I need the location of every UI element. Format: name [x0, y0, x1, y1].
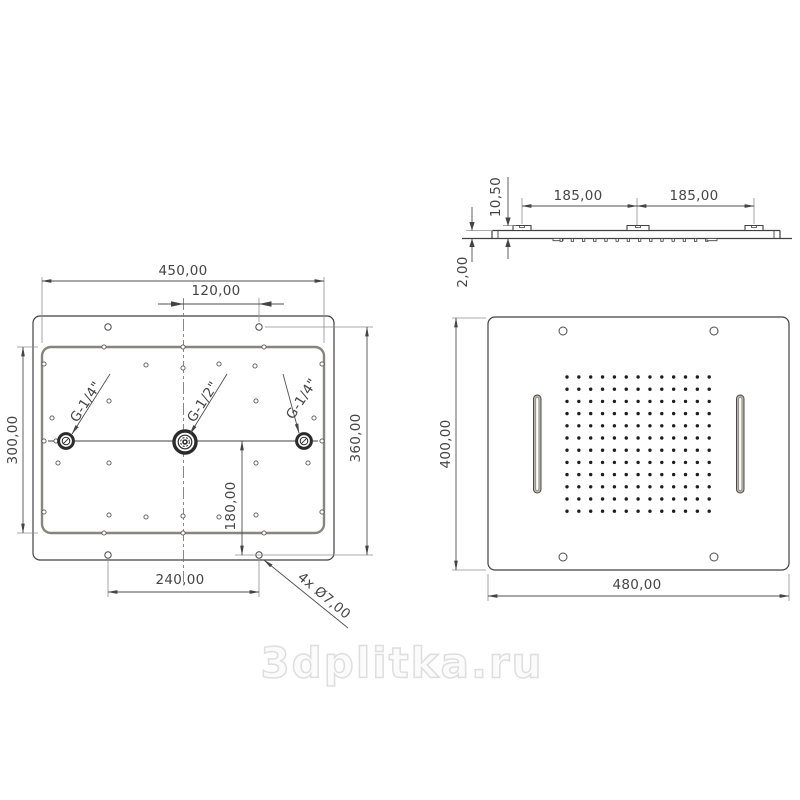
nozzle-dot	[696, 485, 699, 488]
dim-label-plate-width: 450,00	[158, 263, 207, 279]
side-view	[462, 177, 792, 262]
nozzle-dot	[660, 375, 663, 378]
nozzle-dot	[601, 510, 604, 513]
spray-hole	[254, 461, 258, 465]
spray-hole	[107, 461, 111, 465]
fitting-ring	[174, 431, 196, 453]
watermark: 3dplitka.ru	[260, 639, 543, 688]
spray-hole	[262, 531, 266, 535]
nozzle-dot	[613, 412, 616, 415]
nozzle-tick	[616, 239, 618, 242]
nozzle-dot	[684, 436, 687, 439]
spray-hole	[181, 366, 185, 370]
nozzle-dot	[648, 461, 651, 464]
nozzle-dot	[565, 485, 568, 488]
nozzle-dot	[589, 449, 592, 452]
nozzle-dot	[601, 388, 604, 391]
mount-hole	[105, 324, 111, 330]
nozzle-dot	[577, 449, 580, 452]
dim-120-arrow	[259, 301, 272, 306]
nozzle-dot	[660, 497, 663, 500]
nozzle-dot	[672, 485, 675, 488]
mount-hole	[710, 327, 718, 335]
spray-hole	[107, 513, 111, 517]
nozzle-dot-grid	[565, 375, 711, 513]
spray-hole	[320, 510, 324, 514]
nozzle-dot	[684, 412, 687, 415]
nozzle-tick	[638, 239, 640, 242]
nozzle-dot	[660, 388, 663, 391]
nozzle-dot	[708, 424, 711, 427]
nozzle-dot	[625, 400, 628, 403]
spray-hole	[217, 362, 221, 366]
nozzle-dot	[696, 449, 699, 452]
dim-label-front-height: 400,00	[438, 419, 454, 468]
nozzle-dot	[625, 424, 628, 427]
nozzle-tick	[627, 239, 629, 242]
spray-hole	[181, 345, 185, 349]
dim-1050-arrow	[505, 218, 510, 227]
nozzle-dot	[577, 473, 580, 476]
nozzle-dot	[589, 461, 592, 464]
spray-hole	[306, 461, 310, 465]
nozzle-dot	[613, 424, 616, 427]
nozzle-dot	[601, 449, 604, 452]
nozzle-dot	[577, 510, 580, 513]
nozzle-dot	[613, 473, 616, 476]
nozzle-dot	[636, 412, 639, 415]
nozzle-tick	[605, 239, 607, 242]
dim-label-plate-height: 300,00	[5, 415, 21, 464]
nozzle-tick	[560, 239, 562, 242]
nozzle-tick	[683, 239, 685, 242]
nozzle-dot	[648, 412, 651, 415]
nozzle-dot	[696, 424, 699, 427]
mount-hole	[710, 553, 718, 561]
nozzle-dot	[589, 497, 592, 500]
nozzle-dot	[577, 388, 580, 391]
nozzle-dot	[708, 497, 711, 500]
spray-hole	[320, 439, 324, 443]
nozzle-dot	[589, 412, 592, 415]
nozzle-dot	[648, 449, 651, 452]
nozzle-dot	[672, 424, 675, 427]
nozzle-dot	[565, 412, 568, 415]
nozzle-dot	[601, 497, 604, 500]
nozzle-dot	[613, 497, 616, 500]
nozzle-dot	[577, 485, 580, 488]
nozzle-dot	[565, 461, 568, 464]
nozzle-dot	[684, 424, 687, 427]
dim-label-hole-span-h: 240,00	[155, 572, 204, 588]
slot-inner	[739, 398, 742, 491]
nozzle-dot	[708, 485, 711, 488]
nozzle-dot	[684, 461, 687, 464]
nozzle-dot	[589, 424, 592, 427]
dim-1050-arrow	[505, 239, 510, 248]
dim-label-connector-height: 10,50	[488, 177, 504, 217]
nozzle-dot	[684, 449, 687, 452]
nozzle-tick	[661, 239, 663, 242]
nozzle-dot	[708, 412, 711, 415]
nozzle-tick	[571, 239, 573, 242]
nozzle-dot	[601, 485, 604, 488]
nozzle-dot	[589, 485, 592, 488]
nozzle-end-tab	[707, 239, 717, 241]
nozzle-dot	[708, 388, 711, 391]
nozzle-dot	[696, 461, 699, 464]
inlet-connector	[513, 226, 531, 231]
nozzle-dot	[696, 400, 699, 403]
nozzle-dot	[696, 375, 699, 378]
dim-200-arrow	[469, 239, 474, 248]
nozzle-dot	[625, 449, 628, 452]
nozzle-dot	[660, 510, 663, 513]
nozzle-dot	[672, 461, 675, 464]
nozzle-dot	[577, 461, 580, 464]
nozzle-dot	[684, 388, 687, 391]
spray-hole	[254, 399, 258, 403]
nozzle-tick	[694, 239, 696, 242]
nozzle-dot	[684, 510, 687, 513]
nozzle-dot	[648, 510, 651, 513]
nozzle-dot	[648, 485, 651, 488]
nozzle-tick	[672, 239, 674, 242]
nozzle-dot	[601, 400, 604, 403]
spray-hole	[181, 514, 185, 518]
nozzle-dot	[636, 449, 639, 452]
spray-hole	[144, 515, 148, 519]
nozzle-dot	[708, 449, 711, 452]
nozzle-dot	[696, 510, 699, 513]
waterfall-slot-left	[534, 395, 542, 493]
nozzle-dot	[565, 449, 568, 452]
spray-hole	[320, 362, 324, 366]
nozzle-dot	[613, 510, 616, 513]
mount-hole	[559, 327, 567, 335]
nozzle-dot	[565, 400, 568, 403]
nozzle-dot	[696, 388, 699, 391]
nozzle-dot	[613, 400, 616, 403]
nozzle-dot	[660, 412, 663, 415]
nozzle-dot	[565, 388, 568, 391]
nozzle-dot	[708, 510, 711, 513]
nozzle-dot	[613, 436, 616, 439]
nozzle-dot	[565, 510, 568, 513]
dim-label-front-width: 480,00	[612, 577, 661, 593]
nozzle-dot	[672, 473, 675, 476]
nozzle-dot	[684, 400, 687, 403]
drawing-canvas: 450,00 120,00 300,00 360,00 180,00 240,0…	[0, 0, 800, 800]
dim-label-hole-span-v: 360,00	[348, 413, 364, 462]
nozzle-dot	[648, 400, 651, 403]
nozzle-dot	[660, 473, 663, 476]
nozzle-dot	[660, 400, 663, 403]
nozzle-dot	[625, 510, 628, 513]
nozzle-dot	[672, 375, 675, 378]
nozzle-dot	[660, 485, 663, 488]
nozzle-tick	[582, 239, 584, 242]
nozzle-dot	[696, 412, 699, 415]
nozzle-dot	[684, 485, 687, 488]
nozzle-dot	[684, 375, 687, 378]
nozzle-dot	[601, 436, 604, 439]
nozzle-dot	[648, 436, 651, 439]
nozzle-dot	[672, 436, 675, 439]
nozzle-dot	[696, 497, 699, 500]
nozzle-dot	[708, 461, 711, 464]
nozzle-dot	[636, 375, 639, 378]
nozzle-dot	[672, 510, 675, 513]
slot-inner	[536, 398, 539, 491]
nozzle-dot	[672, 400, 675, 403]
spray-hole	[253, 364, 257, 368]
nozzle-dot	[577, 497, 580, 500]
nozzle-dot	[672, 388, 675, 391]
nozzle-dot	[601, 473, 604, 476]
nozzle-dot	[625, 388, 628, 391]
spray-hole	[262, 345, 266, 349]
spray-hole	[42, 439, 46, 443]
nozzle-dot	[648, 497, 651, 500]
connector-body	[513, 226, 531, 231]
spray-hole	[217, 515, 221, 519]
spray-hole	[181, 531, 185, 535]
nozzle-dot	[708, 473, 711, 476]
nozzle-dot	[577, 400, 580, 403]
nozzle-dot	[648, 375, 651, 378]
waterfall-slot-right	[737, 395, 745, 493]
nozzle-dot	[696, 436, 699, 439]
nozzle-dot	[613, 449, 616, 452]
nozzle-dot	[589, 510, 592, 513]
dim-200-arrow	[469, 222, 474, 231]
fitting-g14-right	[297, 434, 312, 449]
nozzle-dot	[565, 473, 568, 476]
nozzle-dot	[613, 375, 616, 378]
dim-label-center-offset: 180,00	[223, 481, 239, 530]
connector-body	[745, 226, 763, 231]
inlet-connectors-group	[513, 226, 763, 231]
nozzle-dot	[636, 388, 639, 391]
spray-hole	[107, 399, 111, 403]
nozzle-dot	[625, 485, 628, 488]
nozzle-dot	[708, 400, 711, 403]
nozzle-dot	[601, 424, 604, 427]
nozzle-dot	[625, 436, 628, 439]
fitting-g12-center	[174, 431, 196, 453]
nozzle-dot	[672, 412, 675, 415]
fitting-g14-left	[59, 434, 74, 449]
mount-hole	[559, 553, 567, 561]
nozzle-tick	[650, 239, 652, 242]
spray-hole	[254, 513, 258, 517]
inlet-connector	[627, 226, 649, 231]
nozzle-dot	[660, 424, 663, 427]
nozzle-dot	[601, 461, 604, 464]
dim-label-spacing-left: 185,00	[553, 188, 602, 204]
nozzle-dot	[565, 375, 568, 378]
nozzle-dot	[636, 497, 639, 500]
mount-hole	[256, 324, 262, 330]
nozzle-dot	[613, 388, 616, 391]
spray-hole	[144, 363, 148, 367]
nozzle-dot	[708, 436, 711, 439]
nozzle-dot	[601, 412, 604, 415]
nozzle-dot	[648, 388, 651, 391]
nozzle-dot	[636, 424, 639, 427]
nozzle-dot	[684, 497, 687, 500]
nozzle-dot	[613, 461, 616, 464]
nozzle-dot	[577, 375, 580, 378]
spray-hole	[312, 416, 316, 420]
nozzle-dot	[565, 497, 568, 500]
nozzle-dot	[625, 497, 628, 500]
nozzle-dot	[577, 424, 580, 427]
spray-hole	[42, 510, 46, 514]
nozzle-dot	[672, 497, 675, 500]
spray-hole	[42, 362, 46, 366]
nozzle-dot	[625, 375, 628, 378]
nozzle-dot	[684, 473, 687, 476]
nozzle-dot	[708, 375, 711, 378]
spray-hole	[56, 461, 60, 465]
nozzle-dot	[648, 424, 651, 427]
dim-120-arrow	[171, 301, 184, 306]
nozzle-dot	[625, 473, 628, 476]
mount-hole	[105, 552, 111, 558]
spray-hole	[50, 416, 54, 420]
inlet-connector	[745, 226, 763, 231]
nozzle-dot	[636, 400, 639, 403]
nozzle-dot	[589, 436, 592, 439]
nozzle-dot	[636, 473, 639, 476]
nozzle-dot	[636, 461, 639, 464]
nozzle-dot	[601, 375, 604, 378]
nozzle-dot	[625, 412, 628, 415]
nozzle-dot	[565, 424, 568, 427]
nozzle-dot	[648, 473, 651, 476]
nozzle-dot	[636, 510, 639, 513]
nozzle-dot	[636, 436, 639, 439]
nozzle-dot	[660, 436, 663, 439]
nozzle-dot	[565, 436, 568, 439]
nozzle-dot	[613, 485, 616, 488]
dim-label-inlet-offset: 120,00	[191, 283, 240, 299]
nozzle-dot	[636, 485, 639, 488]
nozzle-tick	[594, 239, 596, 242]
nozzle-dot	[589, 388, 592, 391]
nozzle-dot	[625, 461, 628, 464]
spray-hole	[102, 531, 106, 535]
nozzle-dot	[589, 375, 592, 378]
nozzle-dot	[660, 449, 663, 452]
dim-label-plate-thickness: 2,00	[455, 256, 471, 287]
nozzle-dot	[672, 449, 675, 452]
nozzle-dot	[589, 400, 592, 403]
nozzle-dot	[660, 461, 663, 464]
nozzle-dot	[696, 473, 699, 476]
connector-body	[627, 226, 649, 231]
dim-label-spacing-right: 185,00	[669, 188, 718, 204]
nozzle-dot	[577, 412, 580, 415]
front-view	[452, 317, 789, 601]
nozzle-dot	[589, 473, 592, 476]
nozzle-dot	[577, 436, 580, 439]
spray-hole	[102, 345, 106, 349]
